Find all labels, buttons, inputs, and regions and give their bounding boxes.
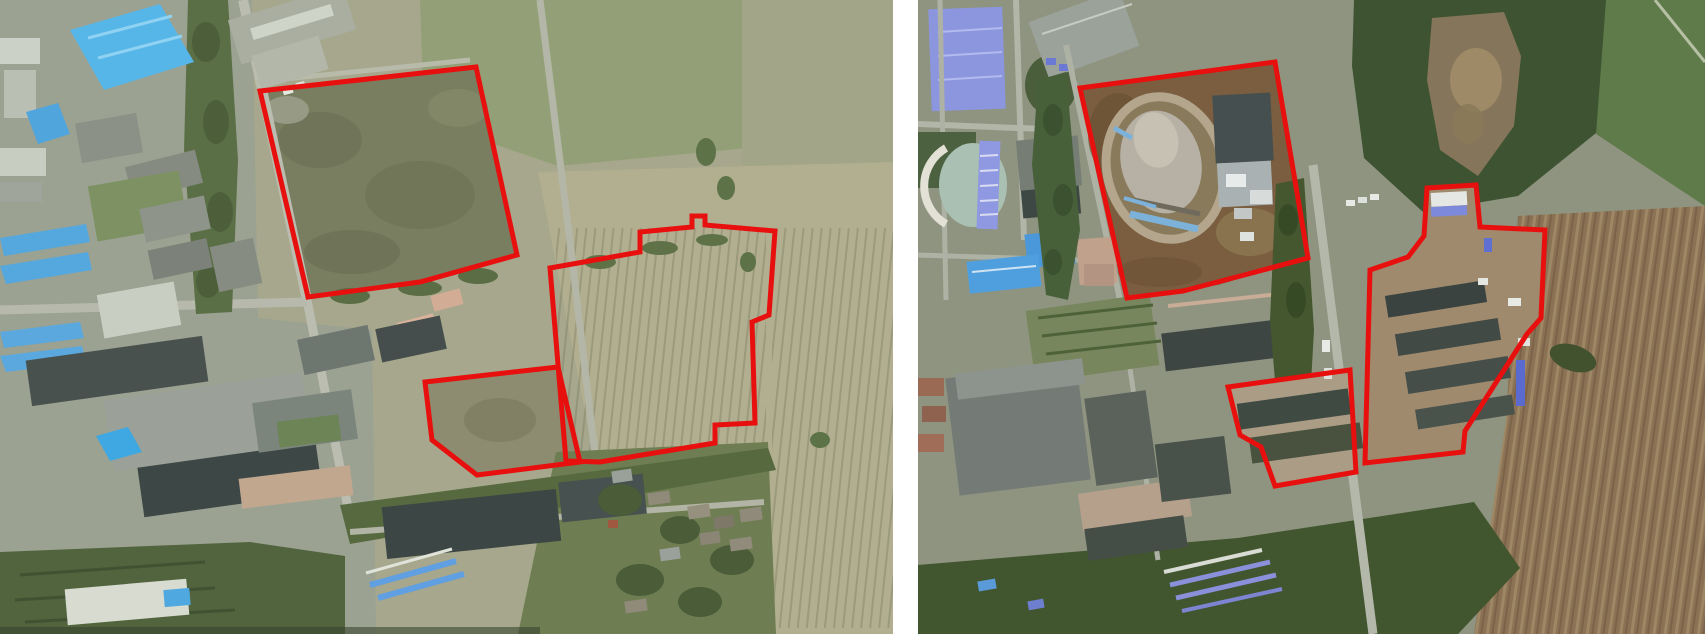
terrain-mottle (365, 161, 475, 229)
trees (207, 192, 233, 232)
vehicle (1370, 194, 1379, 200)
shrubs (642, 241, 678, 255)
roof-detail (980, 155, 998, 156)
terrain-mottle (304, 230, 400, 274)
vehicle (1322, 340, 1330, 352)
building (1431, 191, 1468, 207)
house (608, 520, 618, 528)
trees (1278, 204, 1298, 236)
building (918, 434, 944, 452)
shadow-strip (0, 627, 540, 634)
satellite-figure (0, 0, 1705, 634)
trees (1043, 104, 1063, 136)
roof-detail (980, 170, 998, 171)
blue-container (1484, 238, 1492, 252)
trees (810, 432, 830, 448)
terrain-mottle (428, 89, 488, 127)
trees (1286, 282, 1306, 318)
building (1250, 190, 1272, 204)
terrain-mottle (1452, 104, 1484, 144)
vehicle (1346, 200, 1355, 206)
roof-detail (980, 185, 998, 186)
blue-roof-building (163, 588, 190, 607)
terrain-mottle (1118, 257, 1202, 287)
building (1226, 174, 1246, 187)
building (0, 148, 46, 176)
vehicle (1508, 298, 1521, 306)
building (1212, 93, 1273, 164)
terrain-mottle (464, 398, 536, 442)
building (1084, 264, 1114, 286)
crop-rows (772, 228, 893, 628)
left-satellite-image (0, 0, 893, 634)
trees (740, 252, 756, 272)
blue-roof-building (1431, 205, 1467, 217)
building (0, 38, 40, 64)
shrubs (696, 234, 728, 246)
trees (192, 22, 220, 62)
building (1234, 208, 1252, 219)
right-satellite-image (918, 0, 1705, 634)
building (210, 238, 263, 292)
vehicle (1478, 278, 1488, 285)
roof-detail (980, 214, 998, 215)
trees (696, 138, 716, 166)
trees (717, 176, 735, 200)
building (1084, 390, 1158, 486)
terrain-mottle (1450, 48, 1502, 112)
trees (1044, 249, 1062, 275)
trees (203, 100, 229, 144)
building (1155, 436, 1232, 502)
vehicle (1358, 197, 1367, 203)
building (918, 378, 944, 396)
trees (660, 516, 700, 544)
blue-container (1516, 360, 1525, 406)
building (1240, 232, 1254, 241)
building (922, 406, 946, 422)
trees (616, 564, 664, 596)
building (0, 182, 42, 202)
trees (598, 484, 642, 516)
roof-detail (980, 200, 998, 201)
blue-roof-building (1046, 58, 1056, 65)
trees (678, 587, 722, 617)
trees (1053, 184, 1073, 216)
